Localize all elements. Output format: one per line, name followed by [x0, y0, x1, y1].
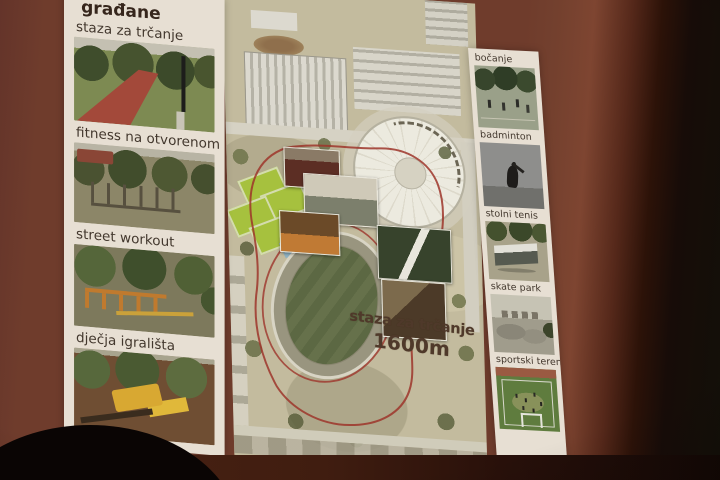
list-item: bočanje [473, 52, 539, 130]
photo-street-workout [74, 244, 215, 338]
list-item: sportski tereni [495, 354, 561, 432]
photo-badminton [480, 142, 545, 209]
list-item: fitness na otvorenom [74, 124, 215, 234]
photo-bocce [474, 65, 539, 130]
list-item: staza za trčanje [74, 19, 215, 133]
aerial-map: staza za trčanje 1600m [222, 0, 487, 472]
list-item: stolni tenis [484, 208, 549, 282]
list-item: badminton [479, 129, 545, 209]
slide-left-column: za građane staza za trčanje fitness na o… [64, 0, 225, 456]
list-item: street workout [74, 226, 215, 338]
photo-running-track [74, 37, 215, 133]
photo-outdoor-fitness [74, 142, 215, 234]
map-photo-thumbnail [279, 210, 340, 256]
list-item: skate park [489, 281, 554, 355]
map-photo-thumbnail [377, 225, 453, 284]
photo-table-tennis [485, 221, 549, 282]
photo-sports-fields [495, 367, 560, 432]
player-dots [515, 394, 517, 398]
photo-skate-park [490, 294, 554, 355]
photo-of-projected-slide: za građane staza za trčanje fitness na o… [0, 0, 720, 480]
